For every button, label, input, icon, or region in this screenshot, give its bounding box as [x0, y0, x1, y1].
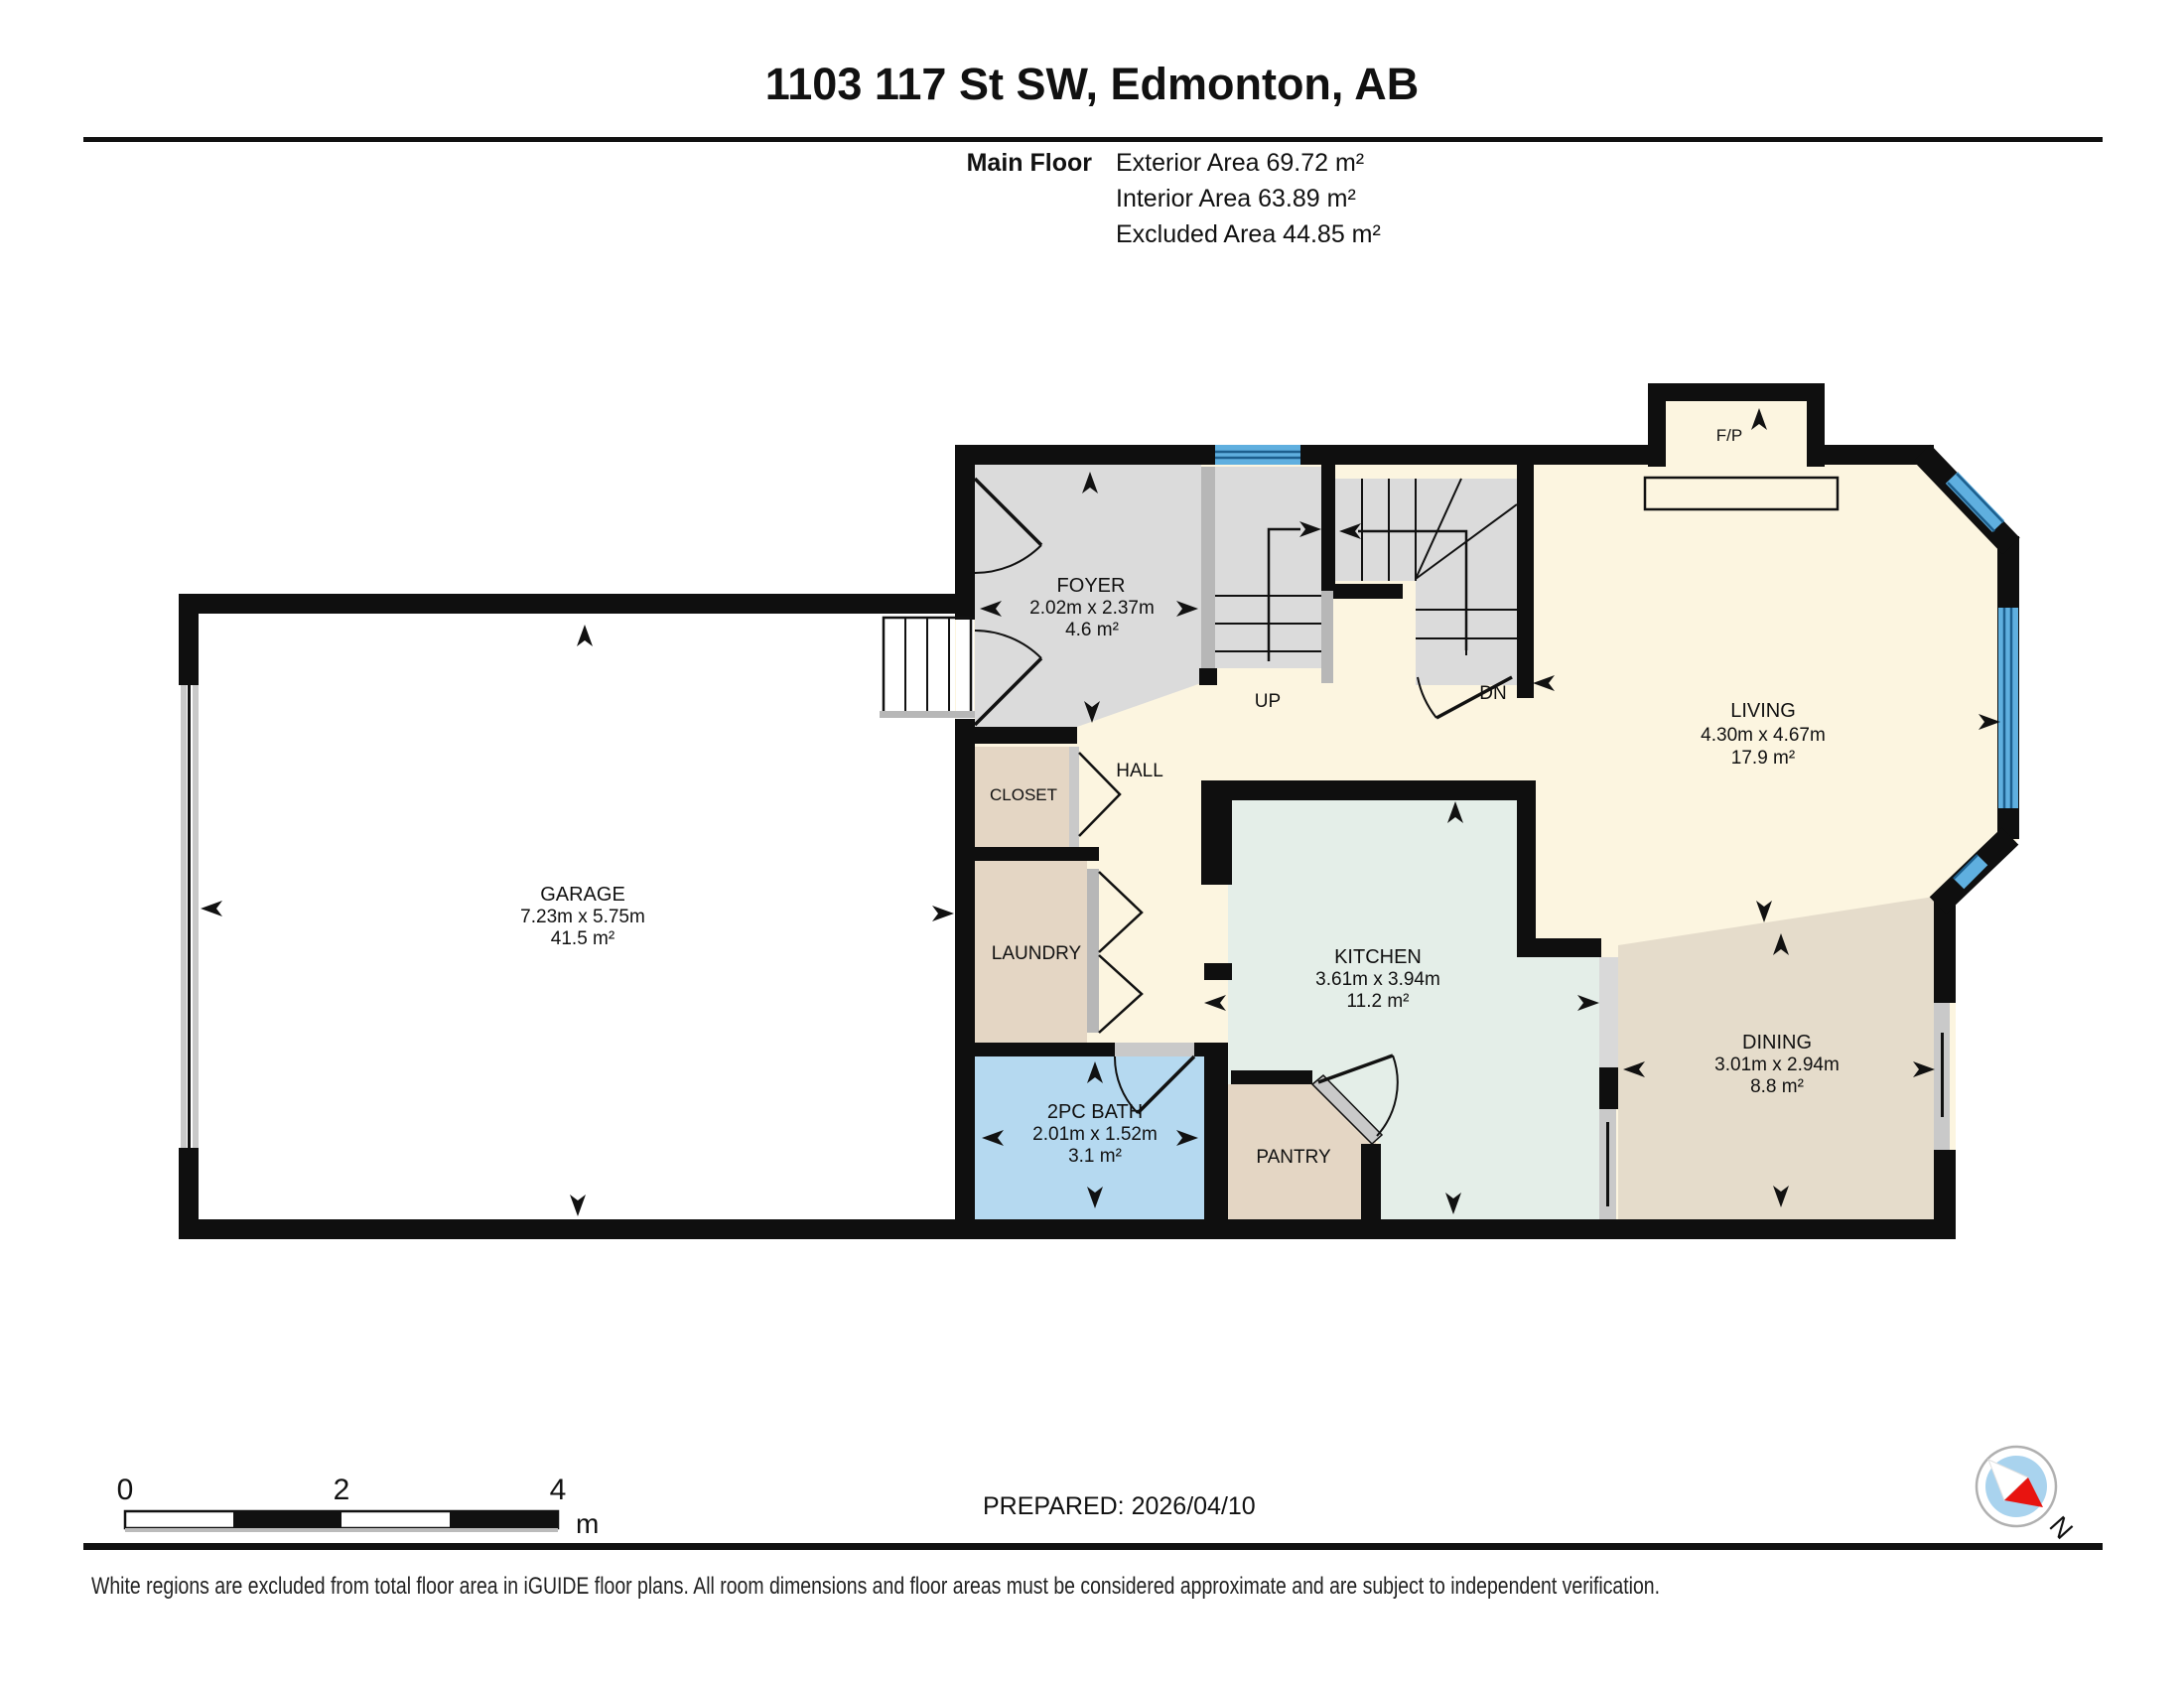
- foyer-label: FOYER: [1057, 575, 1126, 597]
- footer-divider: [83, 1543, 2103, 1550]
- bath-label: 2PC BATH: [1047, 1101, 1143, 1123]
- bath-door-slab: [1115, 1043, 1194, 1056]
- kitchen-area: 11.2 m²: [1346, 991, 1409, 1012]
- fireplace-label: F/P: [1716, 426, 1742, 445]
- kitchen-dims: 3.61m x 3.94m: [1315, 969, 1440, 990]
- interior-area: Interior Area 63.89 m²: [1116, 185, 1356, 212]
- laundry-door-track: [1087, 869, 1099, 1033]
- garage-dims: 7.23m x 5.75m: [520, 907, 645, 927]
- footer-disclaimer: White regions are excluded from total fl…: [91, 1573, 1660, 1600]
- dining-label: DINING: [1742, 1032, 1812, 1054]
- floor-plan-canvas: 1103 117 St SW, Edmonton, AB Main Floor …: [0, 0, 2184, 1688]
- scale-bar: 0 2 4 m: [117, 1474, 600, 1539]
- header: 1103 117 St SW, Edmonton, AB Main Floor …: [83, 59, 2103, 248]
- scale-tick-2: 2: [334, 1474, 350, 1506]
- excluded-area: Excluded Area 44.85 m²: [1116, 220, 1381, 248]
- compass-north-label: N: [2044, 1510, 2079, 1545]
- living-side-window: [1998, 608, 2018, 808]
- garage-area: 41.5 m²: [551, 928, 614, 949]
- up-stair-railing-right: [1321, 591, 1333, 683]
- stair-window: [1215, 445, 1300, 465]
- closet-door-track: [1069, 747, 1079, 847]
- laundry-label: LAUNDRY: [992, 943, 1082, 964]
- page-title: 1103 117 St SW, Edmonton, AB: [765, 59, 1420, 109]
- pantry-label: PANTRY: [1256, 1147, 1331, 1168]
- kitchen-dining-opening: [1599, 957, 1618, 1067]
- up-label: UP: [1255, 691, 1281, 712]
- garage-label: GARAGE: [540, 884, 625, 906]
- foyer-area: 4.6 m²: [1065, 620, 1119, 640]
- garage-door: [181, 685, 187, 1148]
- up-stair-railing-left: [1201, 467, 1215, 668]
- scale-tick-0: 0: [117, 1474, 134, 1506]
- kitchen-label: KITCHEN: [1334, 946, 1422, 968]
- closet-label: CLOSET: [990, 785, 1057, 804]
- prepared-date: PREPARED: 2026/04/10: [983, 1492, 1256, 1520]
- floor-label: Main Floor: [967, 149, 1093, 177]
- dining-area: 8.8 m²: [1750, 1076, 1804, 1097]
- floorplan-page: 1103 117 St SW, Edmonton, AB Main Floor …: [0, 0, 2184, 1688]
- living-label: LIVING: [1730, 700, 1796, 722]
- foyer-dims: 2.02m x 2.37m: [1029, 598, 1155, 619]
- living-dims: 4.30m x 4.67m: [1701, 725, 1826, 746]
- bath-area: 3.1 m²: [1068, 1146, 1122, 1167]
- header-divider: [83, 137, 2103, 142]
- scale-unit: m: [576, 1508, 599, 1539]
- footer: White regions are excluded from total fl…: [83, 1543, 2103, 1600]
- living-area: 17.9 m²: [1731, 748, 1795, 769]
- bath-dims: 2.01m x 1.52m: [1032, 1124, 1158, 1145]
- dining-dims: 3.01m x 2.94m: [1714, 1055, 1840, 1075]
- scale-tick-4: 4: [550, 1474, 567, 1506]
- exterior-area: Exterior Area 69.72 m²: [1116, 149, 1364, 177]
- compass: N: [1977, 1447, 2079, 1545]
- hall-label: HALL: [1116, 761, 1163, 781]
- dn-label: DN: [1479, 683, 1506, 704]
